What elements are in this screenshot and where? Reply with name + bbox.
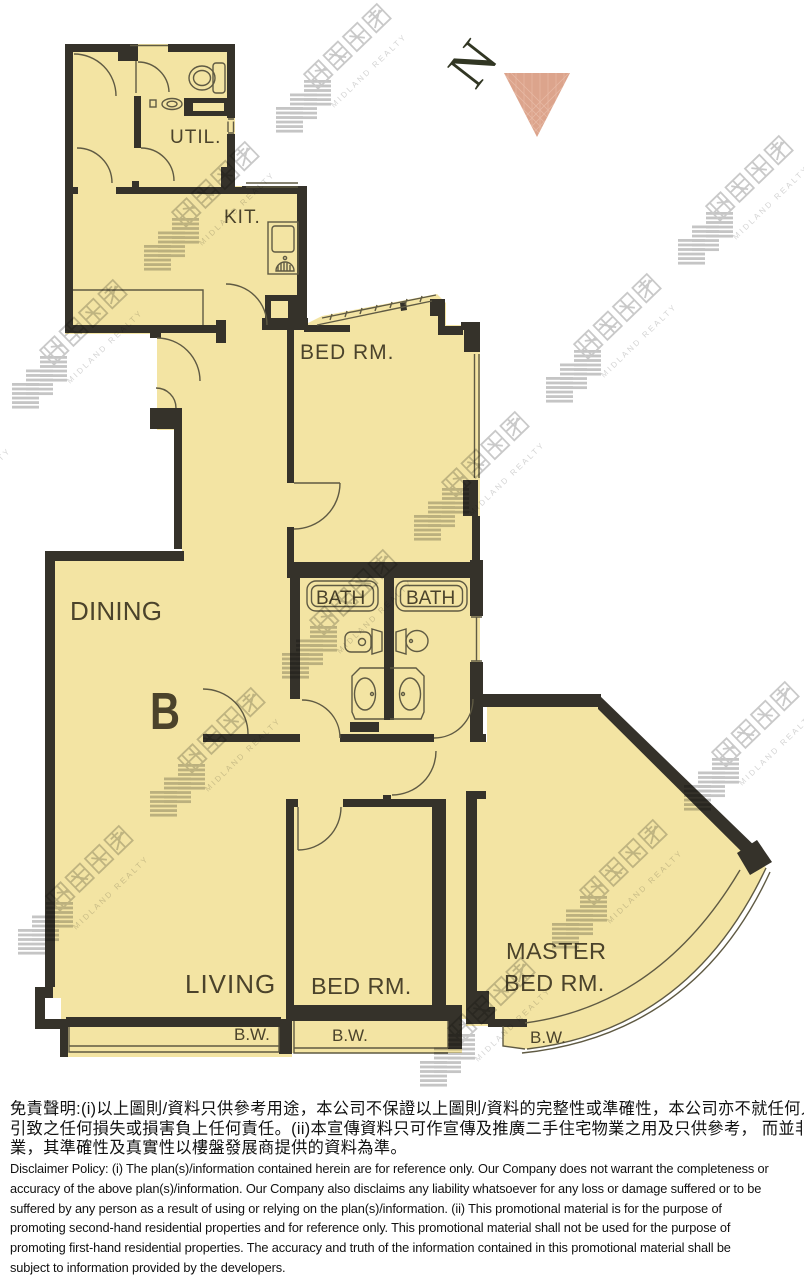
svg-text:BATH: BATH: [406, 588, 455, 609]
svg-text:B.W.: B.W.: [530, 1028, 566, 1047]
svg-text:B.W.: B.W.: [234, 1025, 270, 1044]
svg-text:B.W.: B.W.: [332, 1026, 368, 1045]
svg-text:BED RM.: BED RM.: [504, 970, 605, 996]
svg-text:DINING: DINING: [70, 596, 162, 626]
svg-text:UTIL.: UTIL.: [170, 127, 221, 148]
svg-text:B: B: [150, 682, 180, 741]
svg-text:N: N: [436, 29, 510, 99]
svg-text:LIVING: LIVING: [185, 969, 276, 999]
svg-text:BED RM.: BED RM.: [300, 341, 395, 364]
svg-text:BED RM.: BED RM.: [311, 973, 412, 999]
